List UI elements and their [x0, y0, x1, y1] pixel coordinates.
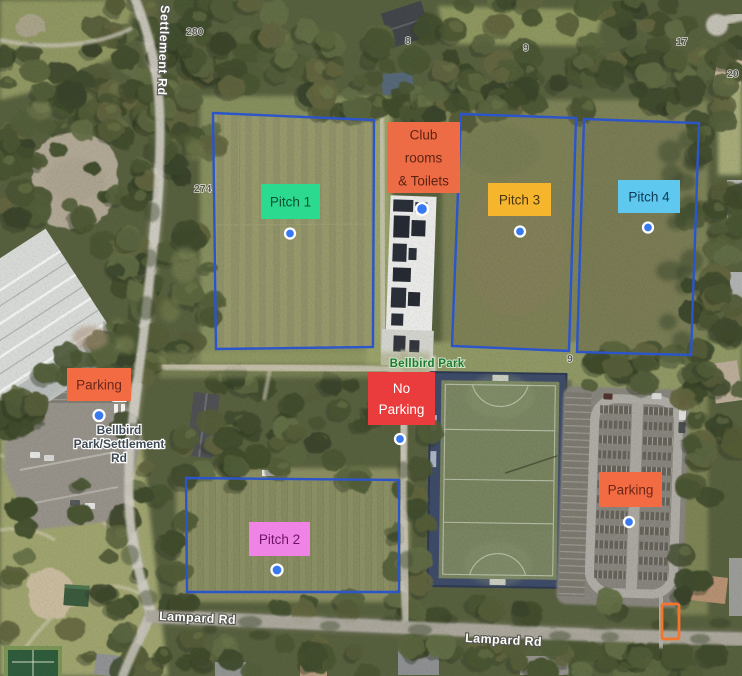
svg-text:9: 9: [523, 42, 529, 54]
svg-text:Rd: Rd: [111, 451, 127, 465]
svg-text:Club: Club: [410, 128, 438, 143]
svg-text:Bellbird Park: Bellbird Park: [390, 358, 465, 370]
svg-text:Park/Settlement: Park/Settlement: [74, 437, 165, 451]
svg-text:Parking: Parking: [76, 378, 122, 393]
svg-text:274: 274: [194, 183, 212, 195]
svg-text:Pitch 1: Pitch 1: [270, 195, 311, 210]
svg-text:Pitch 2: Pitch 2: [259, 532, 300, 547]
svg-text:8: 8: [405, 35, 411, 47]
svg-text:No: No: [393, 381, 410, 396]
svg-text:rooms: rooms: [405, 151, 443, 166]
svg-text:Parking: Parking: [379, 402, 425, 417]
svg-text:17: 17: [676, 36, 688, 48]
svg-text:& Toilets: & Toilets: [398, 174, 449, 189]
svg-text:Bellbird: Bellbird: [97, 423, 142, 437]
svg-text:9: 9: [567, 353, 573, 365]
svg-text:Pitch 4: Pitch 4: [628, 190, 670, 205]
svg-text:Parking: Parking: [608, 483, 654, 498]
svg-text:Pitch 3: Pitch 3: [499, 193, 540, 208]
svg-text:280: 280: [186, 26, 204, 38]
svg-text:20: 20: [727, 68, 739, 80]
